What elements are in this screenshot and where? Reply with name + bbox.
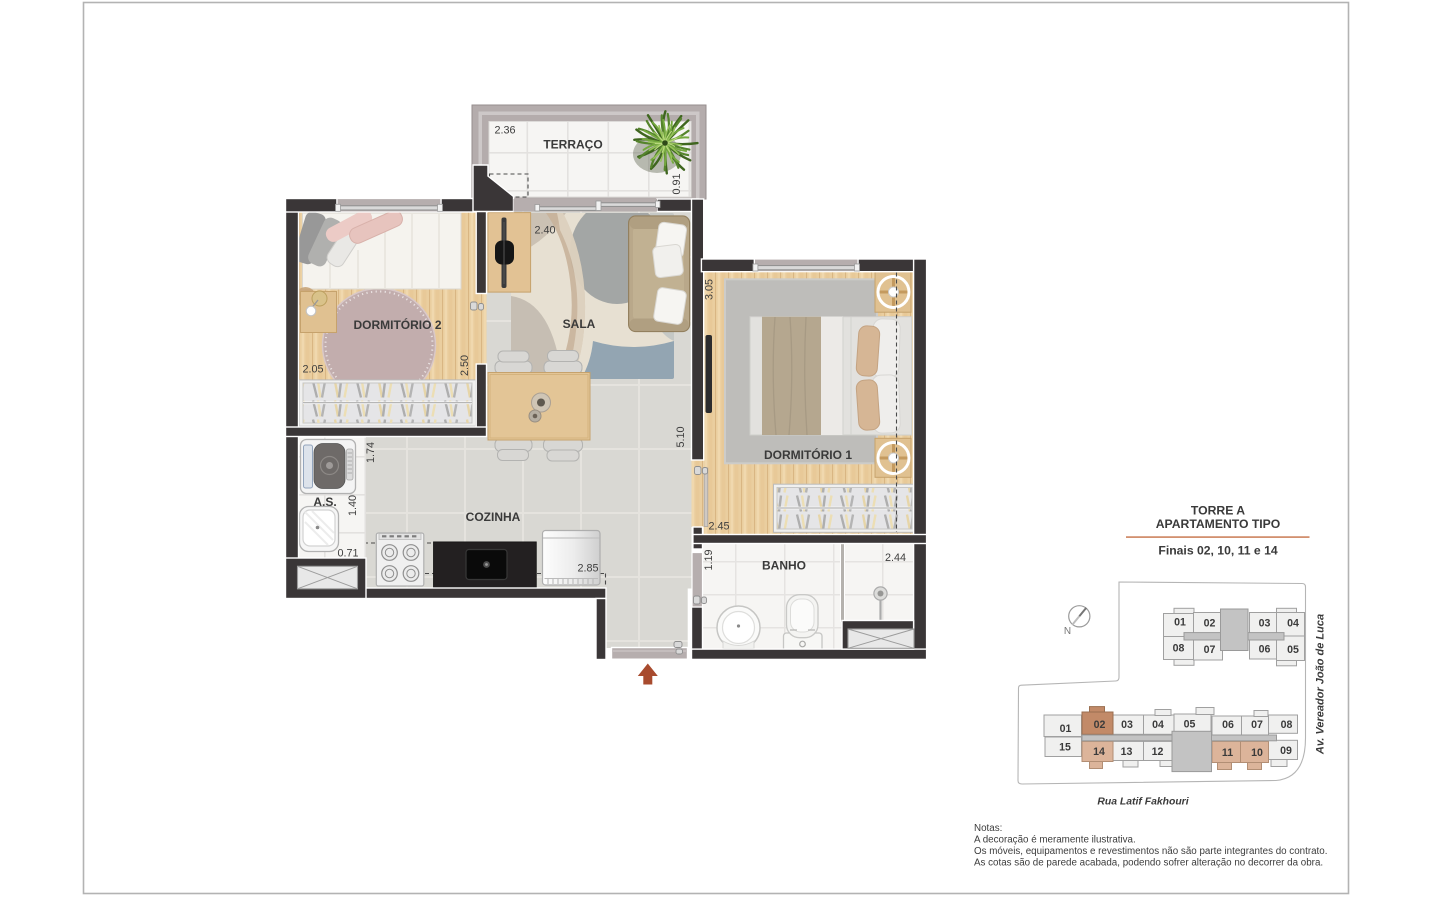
svg-text:05: 05	[1184, 718, 1196, 730]
svg-text:DORMITÓRIO 2: DORMITÓRIO 2	[353, 317, 441, 332]
svg-text:10: 10	[1251, 747, 1263, 759]
svg-text:05: 05	[1287, 644, 1299, 656]
svg-text:2.50: 2.50	[459, 355, 471, 376]
svg-text:N: N	[1064, 626, 1071, 637]
svg-text:Av. Vereador João de Luca: Av. Vereador João de Luca	[1315, 614, 1327, 755]
svg-text:2.36: 2.36	[494, 125, 515, 137]
svg-text:Rua Latif Fakhouri: Rua Latif Fakhouri	[1097, 797, 1189, 808]
svg-text:04: 04	[1287, 617, 1299, 629]
svg-text:2.85: 2.85	[577, 563, 598, 575]
svg-text:06: 06	[1259, 643, 1271, 655]
svg-text:BANHO: BANHO	[762, 559, 806, 573]
svg-text:2.05: 2.05	[302, 364, 323, 376]
svg-text:08: 08	[1173, 642, 1185, 654]
svg-text:APARTAMENTO TIPO: APARTAMENTO TIPO	[1156, 517, 1281, 531]
svg-text:TERRAÇO: TERRAÇO	[543, 138, 602, 152]
svg-text:1.19: 1.19	[703, 549, 715, 570]
svg-text:Finais 02, 10, 11 e 14: Finais 02, 10, 11 e 14	[1158, 544, 1277, 558]
svg-text:07: 07	[1251, 719, 1263, 731]
svg-text:2.44: 2.44	[885, 552, 906, 564]
svg-text:02: 02	[1094, 719, 1106, 731]
svg-text:06: 06	[1222, 719, 1234, 731]
svg-text:A decoração é meramente ilustr: A decoração é meramente ilustrativa.	[974, 835, 1136, 846]
svg-text:03: 03	[1259, 617, 1271, 629]
svg-text:08: 08	[1281, 719, 1293, 731]
svg-text:1.74: 1.74	[365, 442, 377, 463]
svg-text:13: 13	[1121, 746, 1133, 758]
svg-text:11: 11	[1222, 747, 1233, 759]
svg-text:Notas:: Notas:	[974, 823, 1002, 834]
svg-text:03: 03	[1121, 719, 1133, 731]
svg-text:1.40: 1.40	[347, 495, 359, 516]
svg-text:5.10: 5.10	[675, 426, 687, 447]
svg-text:04: 04	[1152, 719, 1164, 731]
svg-text:As cotas são de parede acabada: As cotas são de parede acabada, podendo …	[974, 858, 1323, 869]
svg-text:01: 01	[1174, 617, 1186, 629]
svg-text:Os móveis, equipamentos e reve: Os móveis, equipamentos e revestimentos …	[974, 846, 1327, 857]
svg-text:DORMITÓRIO 1: DORMITÓRIO 1	[764, 447, 852, 462]
svg-text:TORRE A: TORRE A	[1191, 504, 1245, 518]
svg-text:SALA: SALA	[563, 317, 596, 331]
svg-text:02: 02	[1204, 617, 1216, 629]
svg-text:2.40: 2.40	[534, 225, 555, 237]
svg-text:09: 09	[1280, 745, 1292, 757]
svg-text:COZINHA: COZINHA	[466, 510, 521, 524]
svg-text:14: 14	[1093, 746, 1105, 758]
svg-text:0.91: 0.91	[671, 173, 683, 194]
svg-text:2.45: 2.45	[708, 521, 729, 533]
svg-text:12: 12	[1152, 746, 1164, 758]
svg-text:3.05: 3.05	[704, 279, 716, 300]
svg-text:01: 01	[1060, 723, 1072, 735]
svg-text:07: 07	[1204, 644, 1216, 656]
svg-text:15: 15	[1059, 741, 1071, 753]
